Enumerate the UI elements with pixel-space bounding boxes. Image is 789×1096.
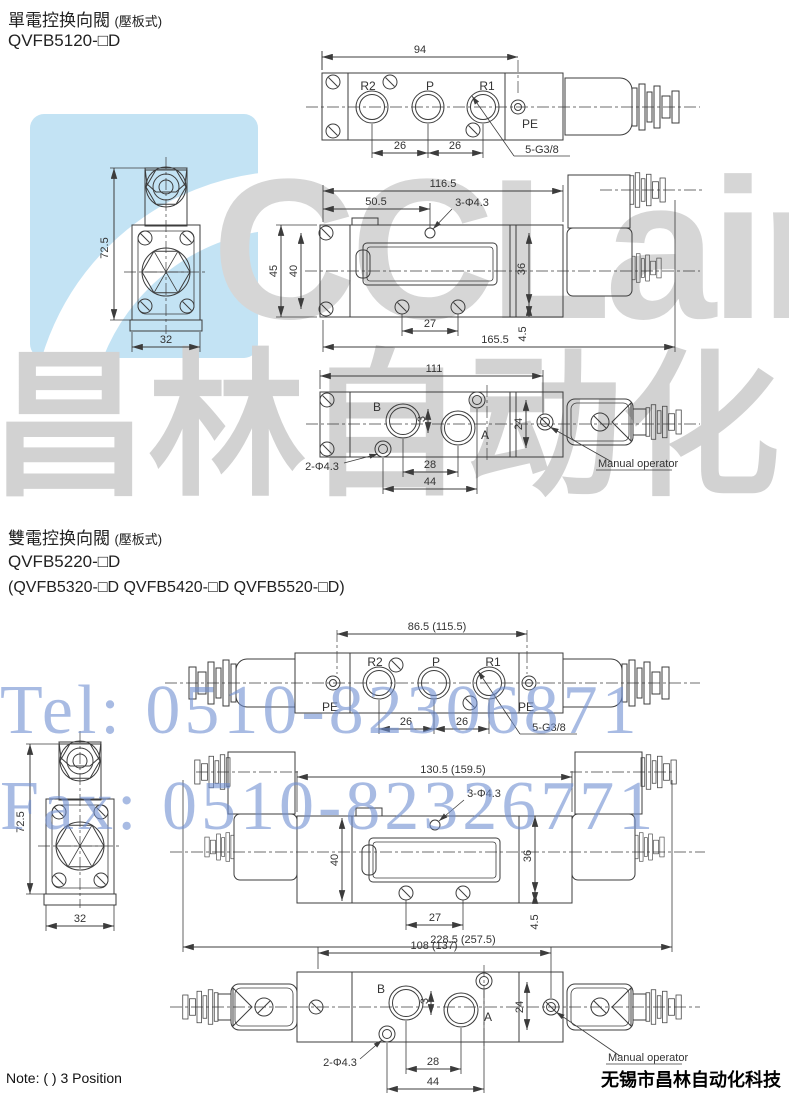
s2-side-holes-label: 3-Φ4.3 [467, 788, 501, 800]
s2-side-dim-27: 27 [429, 912, 441, 924]
s1-end-view: 72.5 32 [99, 157, 208, 352]
s1-side-view: 116.5 50.5 3-Φ4.3 45 40 36 4.5 27 165.5 [268, 173, 702, 352]
catalog-page: CCLair 昌林自动化 Tel: 0510-82306871 Fax: 051… [0, 0, 789, 1096]
s1-top-port-r1: R1 [479, 79, 495, 93]
section2-title-suffix: (壓板式) [114, 532, 162, 547]
s1-top-port-r2: R2 [360, 79, 376, 93]
s2-side-coil-gland-left-icon [205, 833, 234, 862]
s2-bottom-holes-label: 2-Φ4.3 [323, 1057, 357, 1069]
section1-title: 單電控换向閥 (壓板式) [8, 6, 162, 31]
s2-side-dim-45: 4.5 [529, 914, 541, 929]
s1-side-dim-27: 27 [424, 318, 436, 330]
s2-side-dim-40: 40 [329, 854, 341, 866]
footer-note: Note: ( ) 3 Position [6, 1070, 122, 1086]
s1-bottom-dim-3: 3 [416, 416, 428, 422]
s1-top-dim-26a: 26 [394, 140, 406, 152]
section2-model: QVFB5220-□D [8, 552, 120, 572]
s2-bottom-dim-108: 108 (137) [410, 940, 457, 952]
s2-end-dim-32: 32 [74, 913, 86, 925]
s2-bottom-dim-24: 24 [514, 1001, 526, 1013]
s1-bottom-solenoid-icon [567, 399, 646, 445]
s2-side-view: 130.5 (159.5) 3-Φ4.3 40 36 4.5 27 228.5 … [170, 752, 705, 952]
s1-side-dim-36: 36 [516, 263, 528, 275]
s2-side-dim-36: 36 [522, 850, 534, 862]
s1-side-dim-45: 45 [268, 265, 280, 277]
s1-bottom-port-b: B [373, 400, 381, 414]
s2-bottom-manual-label: Manual operator [608, 1052, 688, 1064]
s2-bottom-port-a: A [484, 1010, 492, 1024]
s1-bottom-port-a: A [481, 428, 489, 442]
s1-side-dim-1165: 116.5 [430, 178, 457, 190]
s1-bottom-dim-24: 24 [513, 418, 525, 430]
s1-top-connector-gland-icon [632, 84, 679, 130]
s1-bottom-view: 111 B A 3 24 2-Φ4.3 28 44 Manual operato… [305, 363, 700, 494]
s1-top-pe-label: PE [522, 117, 538, 131]
s1-side-holes-label: 3-Φ4.3 [455, 197, 489, 209]
section1-model: QVFB5120-□D [8, 31, 120, 51]
s2-top-port-r1: R1 [485, 655, 501, 669]
s1-bottom-dim-111: 111 [426, 363, 443, 375]
s2-bottom-dim-28: 28 [427, 1056, 439, 1068]
s2-bottom-dim-3: 3 [419, 998, 431, 1004]
s1-side-dim-1655: 165.5 [481, 334, 509, 346]
s1-bottom-holes-label: 2-Φ4.3 [305, 461, 339, 473]
s2-top-gland-right-icon [622, 660, 669, 706]
s1-top-view: 94 26 26 R2 P R1 PE 5-G3/8 [306, 44, 700, 158]
section2-title: 雙電控换向閥 (壓板式) [8, 524, 162, 549]
s1-side-dim-45b: 4.5 [517, 326, 529, 341]
s2-side-coil-gland-right-icon [635, 833, 664, 862]
s1-bottom-dim-44: 44 [424, 476, 436, 488]
s2-top-port-r2: R2 [367, 655, 383, 669]
s2-top-thread-label: 5-G3/8 [532, 722, 566, 734]
s1-bottom-dim-28: 28 [424, 459, 436, 471]
s1-end-dim-725: 72.5 [99, 237, 111, 258]
s1-side-coil-gland-icon [632, 254, 661, 283]
footer-company: 无锡市昌林自动化科技 [601, 1066, 781, 1092]
s2-top-dim-26a: 26 [400, 716, 412, 728]
section2-alt-models: (QVFB5320-□D QVFB5420-□D QVFB5520-□D) [8, 579, 345, 597]
section2-title-text: 雙電控换向閥 [8, 529, 110, 548]
section1-title-suffix: (壓板式) [114, 14, 162, 29]
s2-end-view: 72.5 32 [15, 731, 122, 931]
s2-top-port-p: P [432, 655, 440, 669]
s1-end-dim-32: 32 [160, 334, 172, 346]
s1-bottom-gland-icon [646, 405, 681, 440]
s1-top-thread-label: 5-G3/8 [525, 144, 559, 156]
s2-top-dim-26b: 26 [456, 716, 468, 728]
s2-bottom-port-b: B [377, 982, 385, 996]
s2-side-dim-1305: 130.5 (159.5) [420, 764, 485, 776]
s2-top-view: 86.5 (115.5) R2 P R1 PE PE 26 26 5-G3/8 [165, 621, 700, 734]
s2-top-pe-right-label: PE [518, 700, 534, 714]
s1-top-port-p: P [426, 79, 434, 93]
section1-title-text: 單電控换向閥 [8, 11, 110, 30]
s1-side-dim-40: 40 [288, 265, 300, 277]
s2-top-dim-865: 86.5 (115.5) [408, 621, 467, 633]
s1-top-dim-94: 94 [414, 44, 426, 56]
s1-side-dim-505: 50.5 [365, 196, 386, 208]
s2-top-pe-left-label: PE [322, 700, 338, 714]
s2-end-dim-725: 72.5 [15, 811, 27, 832]
s1-bottom-manual-label: Manual operator [598, 458, 678, 470]
s1-top-dim-26b: 26 [449, 140, 461, 152]
s2-bottom-dim-44: 44 [427, 1076, 439, 1088]
